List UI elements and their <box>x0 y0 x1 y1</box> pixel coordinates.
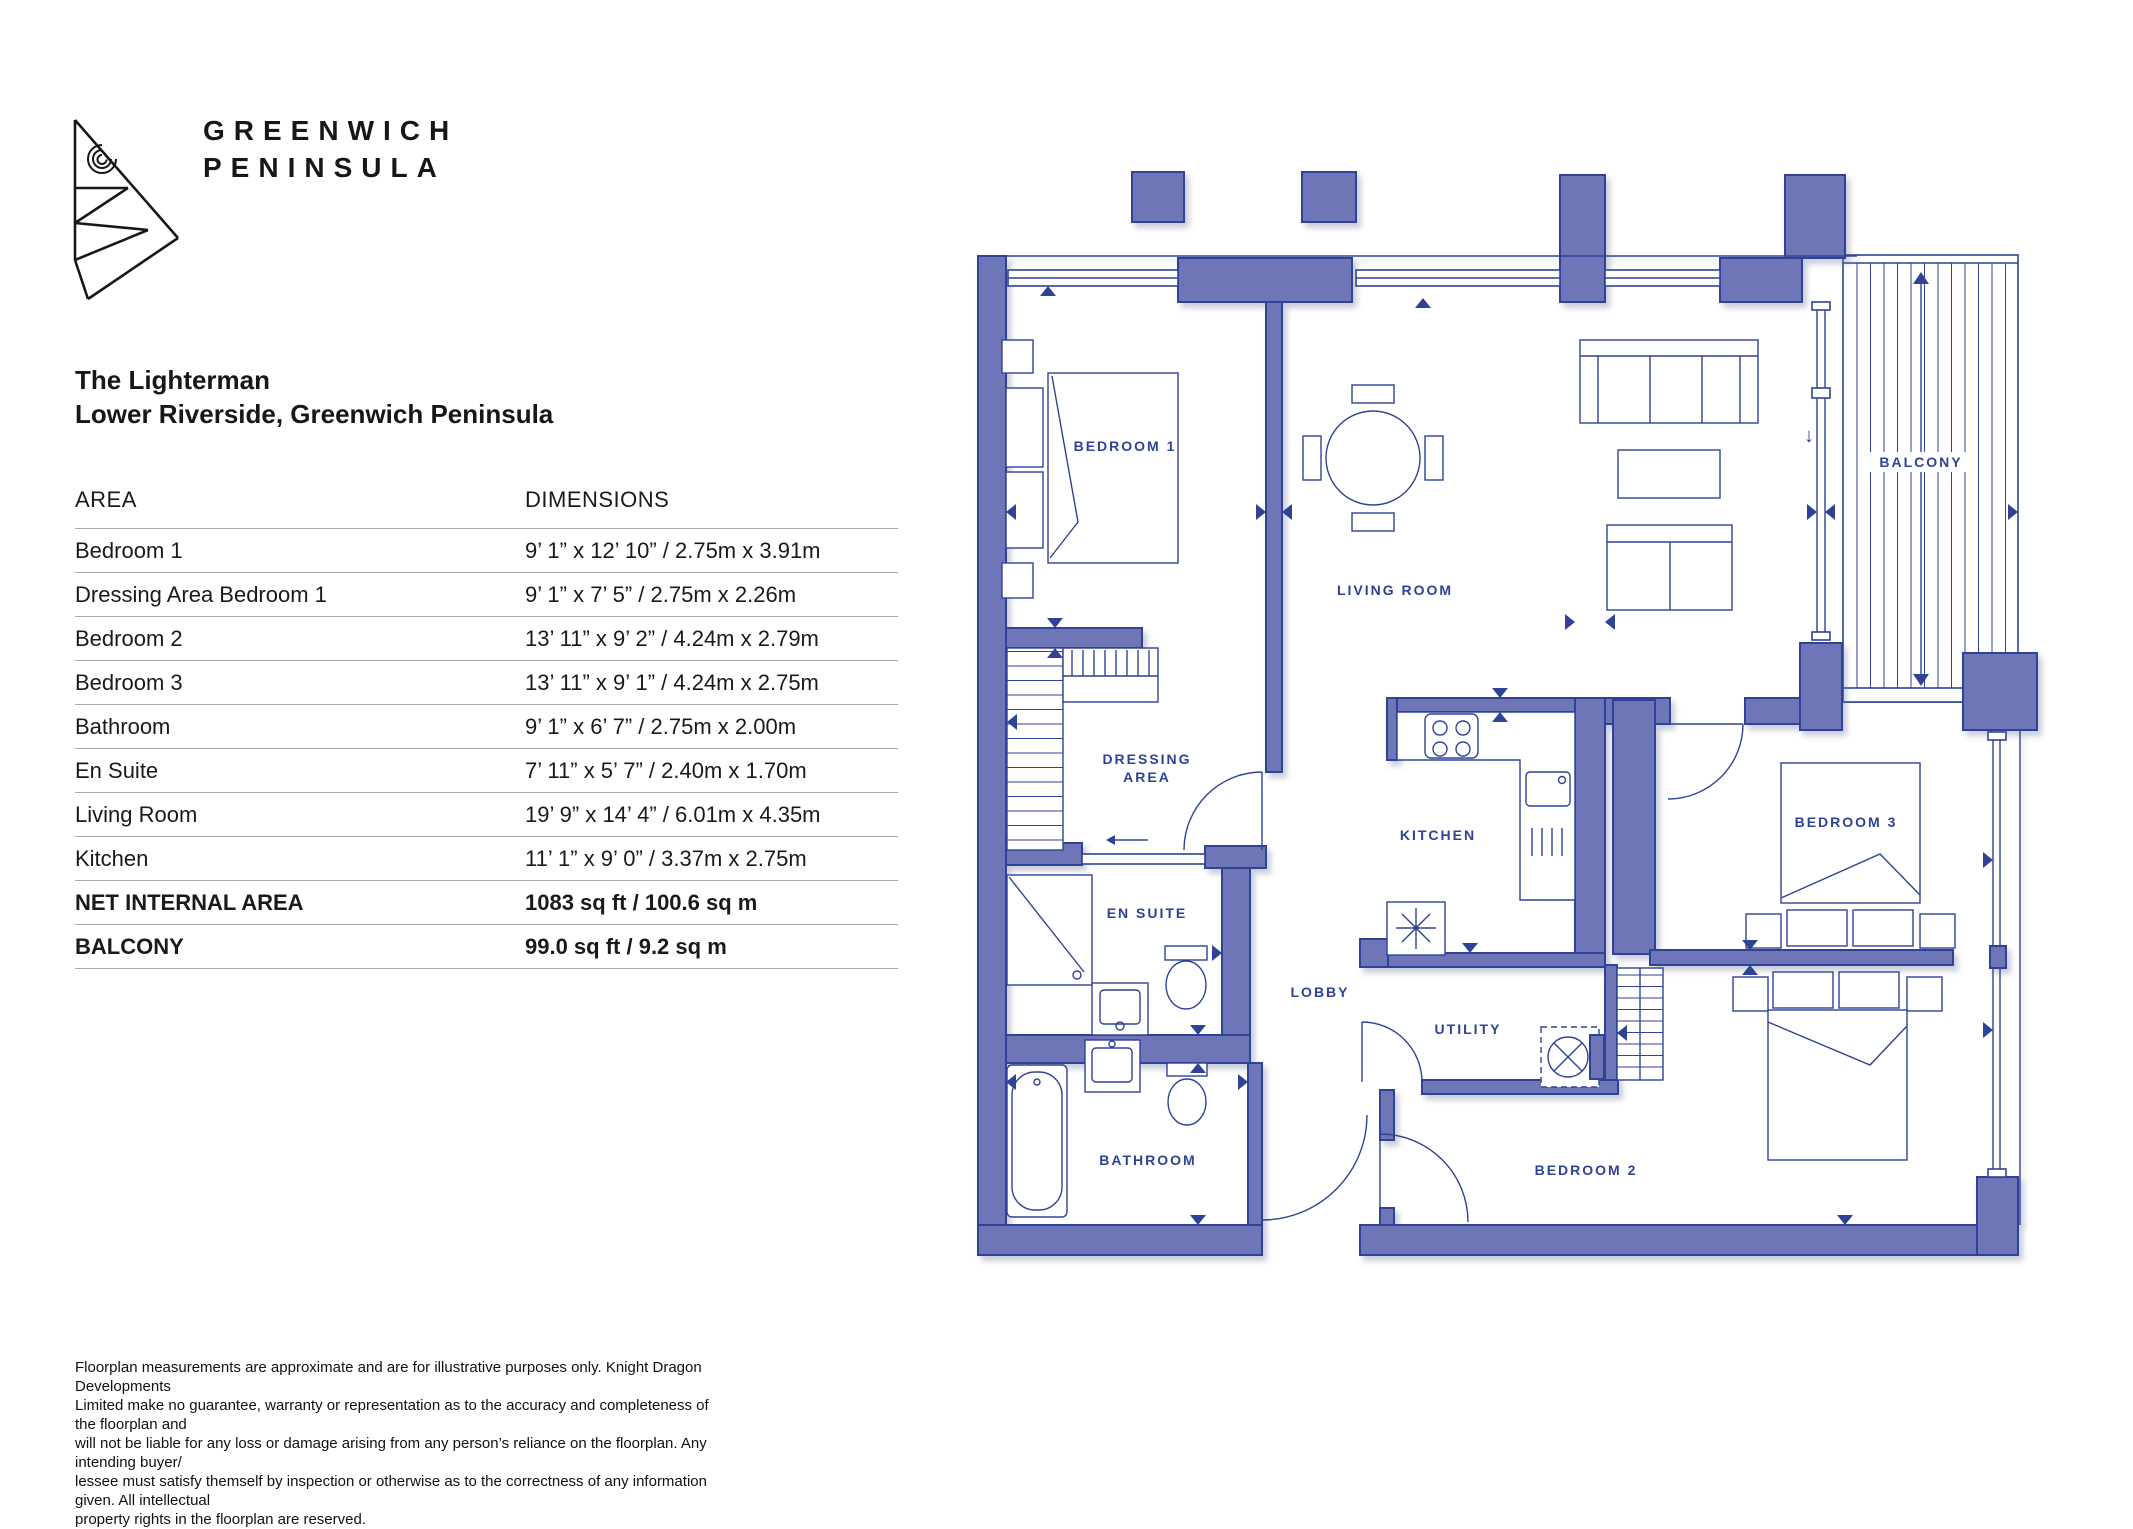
wall-utility-right <box>1605 965 1617 1082</box>
bedroom1-furniture <box>1002 340 1178 598</box>
chair <box>1303 436 1321 480</box>
dressing-area-furniture <box>1007 648 1158 850</box>
balcony-decking <box>1845 263 2016 688</box>
shower <box>1007 875 1092 985</box>
chair <box>1352 513 1394 531</box>
room-dims: 13’ 11” x 9’ 1” / 4.24m x 2.75m <box>525 670 898 696</box>
wall-corner-br <box>1977 1177 2018 1255</box>
dressing-area-label-line1: DRESSING <box>1102 751 1191 767</box>
coffee-table <box>1618 450 1720 498</box>
wall-left-outer <box>978 256 1006 1255</box>
window-balcony-door <box>1812 302 1830 640</box>
bedside-table <box>1002 563 1033 598</box>
room-name: Bedroom 2 <box>75 626 525 652</box>
pier-balcony-left <box>1800 643 1842 730</box>
lobby-label: LOBBY <box>1291 984 1350 1000</box>
pier <box>1720 258 1802 302</box>
pillow <box>1006 388 1043 467</box>
development-name: The Lighterman <box>75 363 553 397</box>
table-row: Bedroom 313’ 11” x 9’ 1” / 4.24m x 2.75m <box>75 661 898 705</box>
utility-label: UTILITY <box>1435 1021 1502 1037</box>
tv-unit <box>1607 525 1732 610</box>
pier <box>1178 258 1352 302</box>
balcony-door-arrow: ↓ <box>1804 425 1814 447</box>
bedroom1-label: BEDROOM 1 <box>1074 438 1177 454</box>
room-name: Living Room <box>75 802 525 828</box>
room-name: En Suite <box>75 758 525 784</box>
dressing-area-label-line2: AREA <box>1123 769 1171 785</box>
room-dims: 13’ 11” x 9’ 2” / 4.24m x 2.79m <box>525 626 898 652</box>
wall-bottom-right <box>1360 1225 2018 1255</box>
ensuite-furniture <box>1007 875 1207 1035</box>
kitchen-label: KITCHEN <box>1400 827 1476 843</box>
disclaimer-line: will not be liable for any loss or damag… <box>75 1434 715 1472</box>
wardrobe-rail <box>1063 648 1158 702</box>
storage-ladder <box>1617 968 1663 1080</box>
living-room-label: LIVING ROOM <box>1337 582 1453 598</box>
total-name: BALCONY <box>75 934 525 960</box>
wall-hall-bedroom2 <box>1380 1090 1394 1140</box>
table-row: Bedroom 213’ 11” x 9’ 2” / 4.24m x 2.79m <box>75 617 898 661</box>
table-row: Kitchen11’ 1” x 9’ 0” / 3.37m x 2.75m <box>75 837 898 881</box>
fridge-freezer <box>1387 902 1445 955</box>
door-bedroom3 <box>1668 724 1743 799</box>
wall-window-junction <box>1990 946 2006 968</box>
utility-furniture <box>1541 968 1663 1087</box>
table-row: Living Room19’ 9” x 14’ 4” / 6.01m x 4.3… <box>75 793 898 837</box>
table-row-total: NET INTERNAL AREA1083 sq ft / 100.6 sq m <box>75 881 898 925</box>
wall-bedroom1-living <box>1266 302 1282 772</box>
pier-balcony-right <box>1963 653 2037 730</box>
table-row: Dressing Area Bedroom 19’ 1” x 7’ 5” / 2… <box>75 573 898 617</box>
wall-living-bedroom3-right <box>1745 698 1800 724</box>
door-entrance <box>1262 1115 1367 1220</box>
disclaimer-line: lessee must satisfy themself by inspecti… <box>75 1472 715 1510</box>
room-dims: 9’ 1” x 7’ 5” / 2.75m x 2.26m <box>525 582 898 608</box>
table-header: AREA DIMENSIONS <box>75 487 898 529</box>
bed <box>1768 1010 1907 1160</box>
floorplan-svg: BALCONY <box>960 160 2090 1270</box>
bathroom-label: BATHROOM <box>1099 1152 1196 1168</box>
ensuite-label: EN SUITE <box>1107 905 1188 921</box>
brand-line2: PENINSULA <box>203 149 458 186</box>
table-row: Bedroom 19’ 1” x 12’ 10” / 2.75m x 3.91m <box>75 529 898 573</box>
disclaimer-text: Floorplan measurements are approximate a… <box>75 1358 715 1529</box>
wall-kitchen-stub <box>1387 698 1397 760</box>
room-name: Dressing Area Bedroom 1 <box>75 582 525 608</box>
bedroom3-furniture <box>1746 763 1955 948</box>
sofa <box>1580 340 1758 423</box>
door-ensuite-pocket <box>1082 835 1205 864</box>
room-name: Bedroom 3 <box>75 670 525 696</box>
table-row: Bathroom9’ 1” x 6’ 7” / 2.75m x 2.00m <box>75 705 898 749</box>
total-value: 1083 sq ft / 100.6 sq m <box>525 890 898 916</box>
chair <box>1425 436 1443 480</box>
greenwich-peninsula-logo-icon <box>60 108 190 308</box>
disclaimer-line: property rights in the floorplan are res… <box>75 1510 715 1529</box>
bedroom3-label: BEDROOM 3 <box>1795 814 1898 830</box>
toilet <box>1165 946 1207 1009</box>
page-title: The Lighterman Lower Riverside, Greenwic… <box>75 363 553 431</box>
logo-spiral-icon <box>88 145 116 173</box>
bedside-table <box>1733 977 1768 1011</box>
bedroom2-furniture <box>1733 972 1942 1160</box>
door-utility <box>1362 1022 1422 1082</box>
room-dims: 19’ 9” x 14’ 4” / 6.01m x 4.35m <box>525 802 898 828</box>
dimensions-table: AREA DIMENSIONS Bedroom 19’ 1” x 12’ 10”… <box>75 487 898 969</box>
bedside-table <box>1920 914 1955 948</box>
wall-pocket-stub <box>1205 846 1266 868</box>
wall-kitchen-right <box>1575 698 1605 965</box>
brand-line1: GREENWICH <box>203 112 458 149</box>
bedside-table <box>1002 340 1033 373</box>
total-name: NET INTERNAL AREA <box>75 890 525 916</box>
wall-kitchen-top <box>1387 698 1575 712</box>
pillow <box>1773 972 1833 1008</box>
pillow <box>1853 910 1913 946</box>
bedroom2-label: BEDROOM 2 <box>1535 1162 1638 1178</box>
room-name: Bathroom <box>75 714 525 740</box>
pillow <box>1839 972 1899 1008</box>
development-address: Lower Riverside, Greenwich Peninsula <box>75 397 553 431</box>
window-bedroom2 <box>1988 968 2006 1177</box>
total-value: 99.0 sq ft / 9.2 sq m <box>525 934 898 960</box>
pier <box>1785 175 1845 258</box>
table-row-total: BALCONY99.0 sq ft / 9.2 sq m <box>75 925 898 969</box>
door-dressing <box>1184 772 1262 850</box>
room-name: Bedroom 1 <box>75 538 525 564</box>
chair <box>1352 385 1394 403</box>
wall-bedroom3-left <box>1613 700 1655 954</box>
pillow <box>1787 910 1847 946</box>
wall-bedroom3-bedroom2 <box>1650 950 1953 965</box>
table-row: En Suite7’ 11” x 5’ 7” / 2.40m x 1.70m <box>75 749 898 793</box>
col-header-area: AREA <box>75 487 525 513</box>
disclaimer-line: Floorplan measurements are approximate a… <box>75 1358 715 1396</box>
room-dims: 7’ 11” x 5’ 7” / 2.40m x 1.70m <box>525 758 898 784</box>
bedside-table <box>1907 977 1942 1011</box>
wall-bottom-left <box>978 1225 1262 1255</box>
wall-bedroom1-dressing <box>1006 628 1142 648</box>
room-dims: 11’ 1” x 9’ 0” / 3.37m x 2.75m <box>525 846 898 872</box>
pier <box>1560 175 1605 302</box>
washing-machine <box>1541 1027 1604 1087</box>
wall-ensuite-right <box>1222 868 1250 1038</box>
wall-bathroom-right <box>1248 1063 1262 1225</box>
bathroom-furniture <box>1007 1040 1207 1217</box>
pier <box>1132 172 1184 222</box>
brand-wordmark: GREENWICH PENINSULA <box>203 112 458 186</box>
kitchen-sink <box>1526 772 1570 806</box>
pier <box>1302 172 1356 222</box>
wall-hall-jamb <box>1380 1208 1394 1225</box>
wall-lobby-stub <box>1360 939 1388 967</box>
dining-table <box>1326 411 1420 505</box>
balcony-label: BALCONY <box>1879 454 1962 470</box>
sink <box>1092 983 1148 1035</box>
col-header-dimensions: DIMENSIONS <box>525 487 898 513</box>
living-room-furniture <box>1303 340 1758 610</box>
window-bedroom3 <box>1988 732 2006 946</box>
room-name: Kitchen <box>75 846 525 872</box>
floorplan-page: { "brand": { "line1": "GREENWICH", "line… <box>0 0 2133 1508</box>
sink <box>1085 1040 1140 1092</box>
balcony-area: BALCONY <box>1843 255 2018 702</box>
room-dims: 9’ 1” x 6’ 7” / 2.75m x 2.00m <box>525 714 898 740</box>
disclaimer-line: Limited make no guarantee, warranty or r… <box>75 1396 715 1434</box>
room-dims: 9’ 1” x 12’ 10” / 2.75m x 3.91m <box>525 538 898 564</box>
hob <box>1425 714 1478 758</box>
bed <box>1781 763 1920 903</box>
